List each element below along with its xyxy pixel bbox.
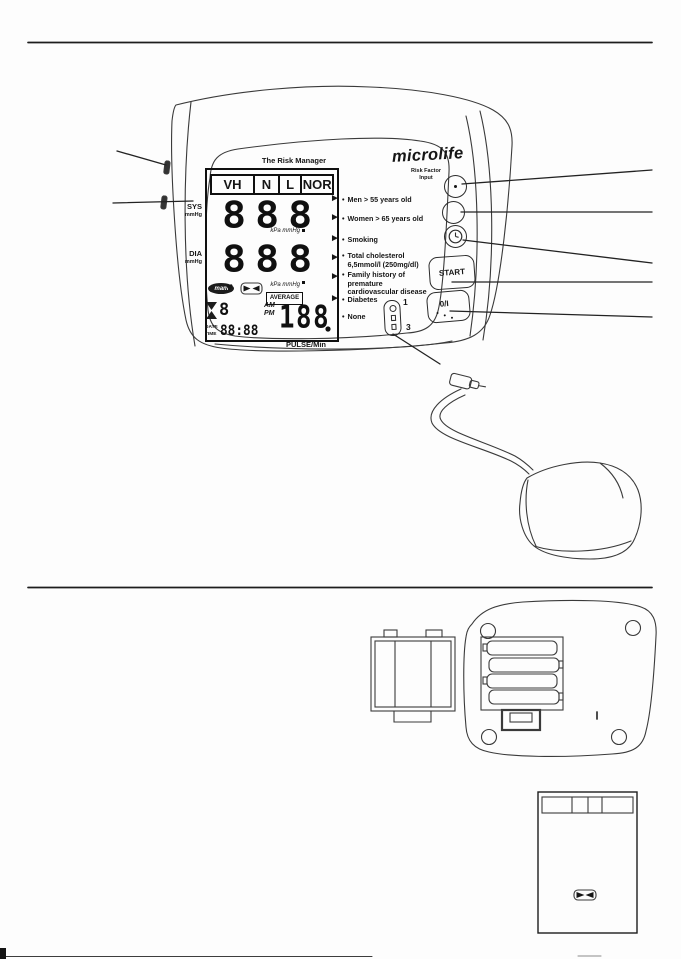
risk-factor-item: •Women > 65 years old [342,215,423,224]
line-art [0,0,681,959]
card-cuff-icon [574,890,596,900]
manual-page: microlife The Risk Manager VH N L NOR SY… [0,0,681,959]
arrow-icon: ► [330,234,340,244]
risk-factor-item: •Total cholesterol 6,5mmol/l (250mg/dl) [342,252,419,269]
bullet-icon: • [342,313,345,322]
switch-knob [389,305,396,312]
bullet-icon: • [342,215,345,224]
sys-kpa-unit: kPa mmHg [264,228,300,234]
brand-logo: microlife [392,144,464,167]
power-button: 0/I [426,289,472,324]
risk-class-row: VH N L NOR [210,174,334,195]
device-back-diagram [464,600,656,756]
risk-class-nor: NOR [300,174,334,195]
pulse-unit: PULSE/Min [277,340,335,349]
dia-digits: 888 [222,241,321,278]
sys-unit: mmHg [180,211,202,219]
risk-factor-item: •Family history of premature cardiovascu… [342,271,440,297]
time-set-button [442,201,465,224]
arrow-icon: ► [330,294,340,304]
mode-switch [383,300,402,337]
arrow-icon: ► [330,253,340,263]
dia-unit: mmHg [180,258,202,266]
cuff-illustration [431,373,641,559]
sys-label: SYS mmHg [180,203,202,219]
speaker-dot [444,314,446,316]
date-label: DATE [205,325,218,331]
risk-class-vh: VH [210,174,255,195]
speaker-dot [436,312,438,314]
risk-input-button [444,175,467,198]
risk-class-n: N [253,174,280,195]
risk-factor-item: •Smoking [342,236,378,245]
datetime-digits: 88:88 [220,324,258,339]
bullet-icon: • [342,296,345,305]
arrow-icon: ► [330,213,340,223]
clock-button [444,225,467,248]
speaker-dot [451,317,453,319]
switch-position-3: 3 [406,322,411,332]
panel-title: The Risk Manager [252,156,336,165]
dia-label: DIA mmHg [180,250,202,266]
risk-factor-item: •Diabetes [342,296,378,305]
page-corner-mark [0,948,6,959]
bullet-icon: • [342,236,345,245]
start-button: START [428,254,476,290]
record-card-diagram [538,792,637,933]
heart-icon: ♥ [226,281,233,293]
adapter-socket [164,161,171,175]
bullet-icon: • [342,252,345,269]
pm-label: PM [264,310,275,317]
arrow-icon: ► [330,194,340,204]
dia-kpa-unit: kPa mmHg [264,282,300,288]
aux-digit: 8 [219,302,229,319]
bullet-icon: • [342,196,345,205]
cuff-socket [161,196,168,210]
switch-position-1: 1 [403,297,408,307]
risk-factor-item: •None [342,313,366,322]
battery-cover-diagram [371,630,455,722]
time-label: TIME [205,332,216,338]
risk-input-label: Risk Factor Input [410,168,442,182]
risk-class-l: L [278,174,303,195]
tube-connector [449,373,487,393]
arrow-icon: ► [330,272,340,282]
pulse-digits: 188 [279,301,330,332]
risk-factor-item: •Men > 55 years old [342,196,412,205]
clock-icon [445,226,466,247]
am-label: AM [264,302,275,309]
bullet-icon: • [342,271,345,297]
button-dot [454,185,457,188]
